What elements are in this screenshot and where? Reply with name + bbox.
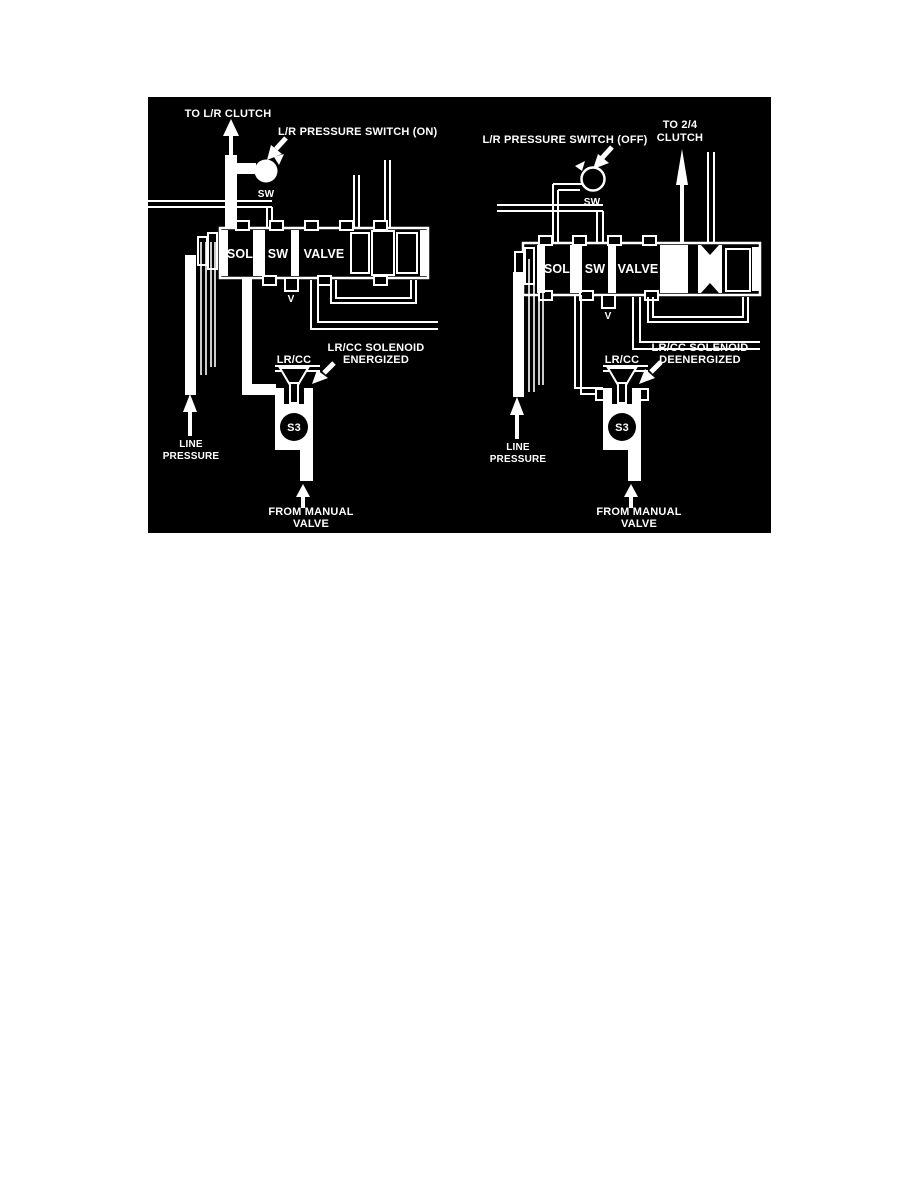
solenoid-supply-pipe-inactive [575,295,603,394]
switch-callout-arrow-shaft [602,147,612,158]
line-pressure-pipe [185,255,196,395]
to-24-clutch-arrow-head [676,149,688,185]
valve-label: VALVE [618,262,659,276]
right-circuit: L/R PRESSURE SWITCH (OFF) TO 2/4 CLUTCH … [482,119,760,530]
valve-tab [318,276,331,285]
from-manual-label-1: FROM MANUAL [268,506,353,518]
hydraulic-diagram: TO L/R CLUTCH L/R PRESSURE SWITCH (ON) S… [148,97,771,533]
spool-barrel [726,249,750,291]
spool-land [660,245,672,293]
switch-elbow-pipe [237,163,256,174]
spool-barrel [372,231,394,275]
solenoid-state-label-2: DEENERGIZED [659,354,741,366]
line-pressure-label-1: LINE [506,442,530,453]
to-24-clutch-label-1: TO 2/4 [663,119,698,131]
s3-label: S3 [615,422,629,434]
hydraulic-diagram-svg: TO L/R CLUTCH L/R PRESSURE SWITCH (ON) S… [148,97,771,533]
sol-label: SOL [544,262,570,276]
lrcc-tag-label: LR/CC [605,354,640,366]
line-pressure-arrow-head [183,394,197,412]
line-pressure-label-2: PRESSURE [163,451,220,462]
valve-tab [608,236,621,245]
switch-tag-label: SW [258,189,275,200]
valve-tab [645,291,658,300]
vent-pocket [285,278,298,291]
to-lr-clutch-arrow-shaft [229,134,233,156]
valve-tab [236,221,249,230]
solenoid-state-label-1: LR/CC SOLENOID [328,342,425,354]
manual-valve-pipe [628,450,641,481]
drain-passage-inner [653,297,743,317]
sol-label: SOL [227,247,253,261]
from-manual-label-2: VALVE [621,518,657,530]
vent-label: V [605,311,612,322]
spool-barrel [351,233,369,273]
switch-plunger-icon [575,161,585,171]
to-24-clutch-label-2: CLUTCH [657,132,703,144]
spool-land [291,230,299,276]
lr-clutch-pipe [225,155,237,231]
pressure-switch-circle-on [255,160,278,183]
line-pressure-arrow-shaft [515,413,519,439]
switch-callout-arrow-shaft [276,138,286,149]
clutch-feed-pipe [708,152,714,243]
spool-barrel [397,233,417,273]
line-pressure-label-1: LINE [179,439,203,450]
valve-tab [340,221,353,230]
manual-valve-pipe [300,450,313,481]
spool-land [672,245,688,293]
solenoid-callout-arrow-shaft [324,363,334,373]
valve-tab [270,221,283,230]
vent-label: V [288,294,295,305]
switch-tag-label: SW [584,197,601,208]
line-pressure-pipe [513,272,524,397]
spool-land [420,230,428,276]
solenoid-supply-elbow [242,384,276,395]
sw-label: SW [585,262,606,276]
solenoid-side-port [640,389,648,400]
valve-tab [573,236,586,245]
lrcc-tag-label: LR/CC [277,354,312,366]
spool-land [608,245,616,293]
line-pressure-arrow-shaft [188,410,192,436]
valve-tab [263,276,276,285]
solenoid-stem [290,383,298,403]
to-lr-clutch-arrow-head [223,119,239,136]
valve-tab [374,276,387,285]
from-manual-label-2: VALVE [293,518,329,530]
solenoid-state-label-2: ENERGIZED [343,354,409,366]
line-pressure-arrow-head [510,397,524,415]
pressure-switch-circle-off [582,168,605,191]
from-manual-label-1: FROM MANUAL [596,506,681,518]
spool-land [570,245,582,293]
solenoid-supply-pipe [242,278,252,392]
feed-lines [148,201,272,228]
spool-land [253,230,265,276]
s3-label: S3 [287,422,301,434]
switch-pipe [553,184,582,243]
vent-pocket [602,295,615,308]
left-circuit: TO L/R CLUTCH L/R PRESSURE SWITCH (ON) S… [148,108,438,530]
valve-tab [374,221,387,230]
to-lr-clutch-label: TO L/R CLUTCH [185,108,272,120]
solenoid-state-label-1: LR/CC SOLENOID [652,342,749,354]
pressure-switch-off-label: L/R PRESSURE SWITCH (OFF) [482,134,647,146]
solenoid-side-port [596,389,604,400]
riser-pipes [354,160,390,228]
valve-tab [539,236,552,245]
pressure-switch-on-label: L/R PRESSURE SWITCH (ON) [278,126,438,138]
valve-label: VALVE [304,247,345,261]
valve-tab [643,236,656,245]
valve-tab [305,221,318,230]
spool-land [752,247,760,291]
sw-label: SW [268,247,289,261]
drain-passage-inner [648,297,748,322]
line-pressure-label-2: PRESSURE [490,454,547,465]
manual-page: TO L/R CLUTCH L/R PRESSURE SWITCH (ON) S… [0,0,918,1188]
to-24-clutch-arrow-shaft [680,183,684,245]
solenoid-stem [618,383,626,403]
